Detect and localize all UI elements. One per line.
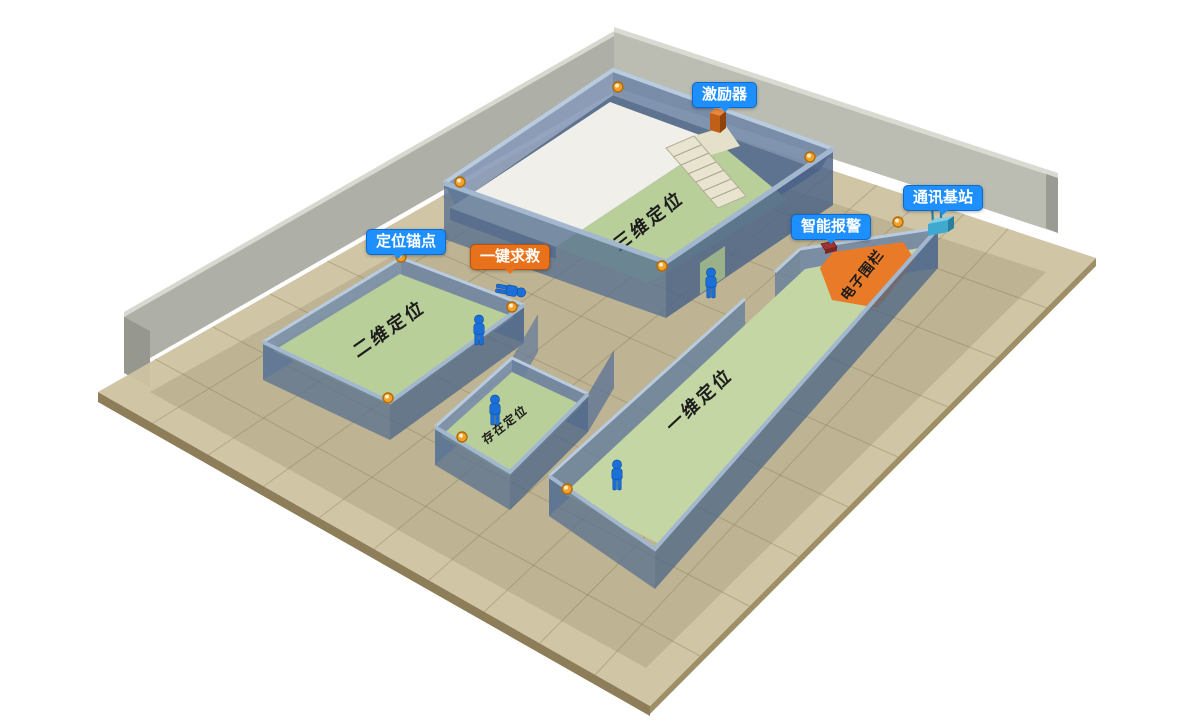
- isometric-scene: 三维定位 二维定位 存在定位 电子围栏 一维定位: [0, 0, 1200, 723]
- callout-smart-alarm-label: 智能报警: [801, 217, 861, 235]
- scene-container: 三维定位 二维定位 存在定位 电子围栏 一维定位: [0, 0, 1200, 723]
- callout-comm-base[interactable]: 通讯基站: [903, 185, 983, 211]
- anchor-dot[interactable]: [507, 302, 517, 312]
- anchor-dot[interactable]: [657, 261, 667, 271]
- callout-smart-alarm[interactable]: 智能报警: [791, 214, 871, 240]
- anchor-dot[interactable]: [457, 432, 467, 442]
- callout-exciter[interactable]: 激励器: [692, 82, 757, 108]
- callout-anchor-point-label: 定位锚点: [376, 232, 436, 250]
- callout-sos[interactable]: 一键求救: [470, 244, 550, 270]
- callout-sos-label: 一键求救: [480, 247, 540, 265]
- anchor-dot[interactable]: [805, 152, 815, 162]
- anchor-dot[interactable]: [562, 484, 572, 494]
- callout-exciter-label: 激励器: [702, 85, 747, 103]
- anchor-dot[interactable]: [383, 393, 393, 403]
- anchor-dot[interactable]: [455, 177, 465, 187]
- anchor-dot[interactable]: [893, 217, 903, 227]
- callout-anchor-point[interactable]: 定位锚点: [366, 229, 446, 255]
- anchor-dot[interactable]: [613, 82, 623, 92]
- callout-comm-base-label: 通讯基站: [913, 188, 973, 206]
